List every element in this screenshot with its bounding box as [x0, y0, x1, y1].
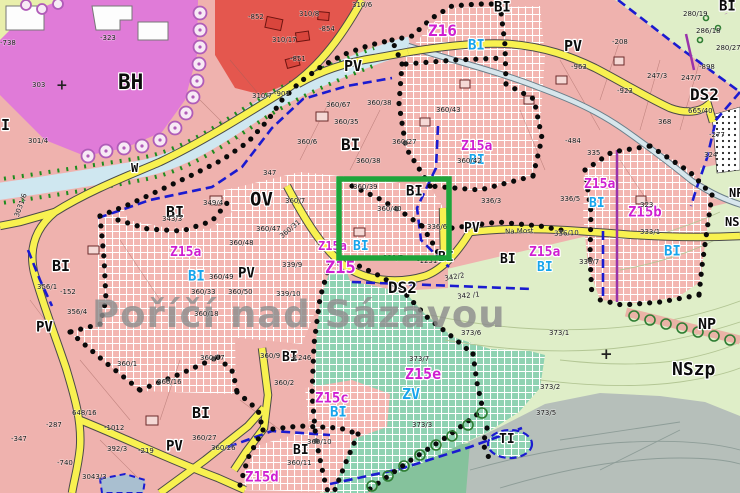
zone-code-label: TI	[499, 432, 515, 447]
use-code-label: BI	[537, 260, 553, 275]
parcel-number-label: 360/33	[191, 288, 216, 296]
parcel-number-label: 343/3	[162, 215, 182, 223]
zone-code-label: PV	[344, 57, 362, 75]
parcel-number-label: 360/18	[194, 310, 219, 318]
parcel-number-label: -208	[612, 38, 628, 46]
parcel-number-label: 360/38	[367, 99, 392, 107]
plan-code-label: Z15	[325, 258, 356, 278]
parcel-number-label: 360/17	[200, 354, 225, 362]
zone-code-label: PV	[238, 266, 255, 282]
parcel-number-label: -738	[0, 39, 16, 47]
parcel-number-label: -898	[699, 63, 715, 71]
transport-corridor-ds2	[712, 107, 740, 173]
zone-code-label: DS2	[388, 278, 417, 297]
map-canvas: Poříčí nad Sázavou OVBHBIBIBIIBIBIBIBIBI…	[0, 0, 740, 493]
parcel-number-label: 339/9	[282, 261, 302, 269]
parcel-number-label: 360/1	[117, 360, 137, 368]
parcel-number-label: 280/27	[716, 44, 740, 52]
survey-cross: +	[56, 78, 68, 94]
parcel-number-label: 360/49	[209, 273, 234, 281]
parcel-number-label: 373/5	[536, 409, 556, 417]
parcel-number-label: 286/18	[696, 27, 721, 35]
parcel-number-label: 360/10	[307, 438, 332, 446]
plan-code-label: Z15a	[529, 245, 560, 260]
parcel-number-label: 373/6	[461, 329, 482, 337]
use-code-label: ZV	[402, 385, 420, 403]
zoning-map: Poříčí nad Sázavou OVBHBIBIBIIBIBIBIBIBI…	[0, 0, 740, 493]
use-code-label: BI	[589, 196, 605, 211]
zone-code-label: NSzp	[725, 215, 740, 229]
parcel-number-label: 360/7	[285, 197, 305, 205]
zone-code-label: BI	[494, 0, 511, 16]
use-code-label: BI	[468, 38, 485, 54]
parcel-number-label: 360/27	[392, 138, 417, 146]
parcel-number-label: -152	[60, 288, 76, 296]
parcel-number-label: -219	[138, 447, 154, 455]
parcel-number-label: -851	[290, 55, 306, 63]
parcel-number-label: -277	[709, 131, 725, 139]
zone-code-label: BI	[719, 0, 736, 15]
parcel-number-label: 280/19	[683, 10, 708, 18]
parcel-number-label: -1012	[104, 424, 124, 432]
parcel-number-label: -484	[565, 137, 581, 145]
zone-code-label: PV	[166, 439, 183, 455]
zone-code-label: BI	[406, 184, 423, 200]
parcel-number-label: -1246	[291, 354, 312, 362]
parcel-number-label: 339/10	[276, 290, 301, 298]
parcel-number-label: 360/16	[157, 378, 182, 386]
use-code-label: BI	[353, 239, 369, 254]
plan-code-label: Z15a	[170, 245, 201, 260]
zone-code-label: NSzp	[672, 359, 716, 380]
parcel-number-label: 247/3	[647, 72, 667, 80]
parcel-number-label: 368	[658, 118, 671, 126]
parcel-number-label: -854	[319, 25, 335, 33]
parcel-number-label: 360/42	[457, 157, 482, 165]
survey-cross: +	[600, 345, 613, 363]
parcel-number-label: 360/2	[274, 379, 294, 387]
plan-code-label: Z15a	[584, 177, 615, 192]
parcel-number-label: 360/9	[260, 352, 280, 360]
parcel-number-label: -287	[46, 421, 62, 429]
parcel-number-label: 360/27	[192, 434, 217, 442]
parcel-number-label: 336/6	[427, 223, 448, 231]
zone-code-label: OV	[250, 189, 273, 211]
use-code-label: BI	[188, 269, 205, 285]
parcel-number-label: 360/26	[211, 444, 236, 452]
parcel-number-label: 356/1	[37, 283, 57, 291]
parcel-number-label: 323	[640, 201, 653, 209]
parcel-number-label: 360/11	[287, 459, 312, 467]
parcel-number-label: 360/40	[377, 205, 402, 213]
parcel-number-label: 303	[32, 81, 45, 89]
parcel-number-label: 356/4	[67, 308, 88, 316]
parcel-number-label: 360/50	[228, 288, 253, 296]
parcel-number-label: 310/7	[252, 92, 272, 100]
parcel-number-label: -963	[571, 63, 587, 71]
plan-code-label: Z15d	[245, 470, 279, 486]
zone-code-label: BI	[192, 404, 210, 422]
parcel-number-label: 392/3	[107, 445, 127, 453]
town-name-label: Poříčí nad Sázavou	[92, 293, 506, 336]
parcel-number-label: 373/7	[409, 355, 429, 363]
zone-code-label: I	[1, 116, 10, 134]
zone-code-label: BH	[118, 70, 143, 94]
parcel-number-label: -852	[248, 13, 264, 21]
zone-code-label: W	[131, 161, 139, 175]
parcel-number-label: 333/1	[640, 228, 660, 236]
parcel-number-label: 360/47	[256, 225, 281, 233]
parcel-number-label: 324	[704, 151, 718, 159]
zone-code-label: PV	[464, 221, 480, 236]
parcel-number-label: 373/3	[412, 421, 432, 429]
parcel-number-label: 373/2	[540, 383, 560, 391]
plan-code-label: Z15e	[405, 365, 441, 383]
parcel-number-label: 665/40	[688, 107, 713, 115]
zone-code-label: PV	[564, 37, 582, 55]
parcel-number-label: 360/48	[229, 239, 254, 247]
plan-code-label: Z15a	[318, 239, 347, 253]
parcel-number-label: Na Most	[505, 227, 534, 236]
parcel-number-label: 360/39	[353, 183, 378, 191]
parcel-number-label: -923	[617, 87, 633, 95]
zone-code-label: BI	[341, 135, 360, 154]
parcel-number-label: -323	[100, 34, 116, 42]
zone-code-label: BI	[52, 257, 70, 275]
parcel-number-label: 310/6	[352, 1, 373, 9]
zone-code-label: PV	[36, 320, 53, 336]
zone-code-label: BI	[500, 252, 516, 267]
parcel-number-label: 310/17	[272, 36, 297, 44]
use-code-label: BI	[330, 405, 347, 421]
parcel-number-label: -901	[274, 90, 290, 98]
zone-code-label: DS2	[690, 85, 719, 104]
use-code-label: BI	[664, 244, 681, 260]
parcel-number-label: -740	[57, 459, 73, 467]
parcel-number-label: 347	[263, 169, 276, 177]
parcel-number-label: 247/7	[681, 74, 701, 82]
parcel-number-label: 360/6	[297, 138, 318, 146]
parcel-number-label: 360/35	[334, 118, 359, 126]
parcel-number-label: 336/5	[560, 195, 580, 203]
parcel-number-label: 360/67	[326, 101, 351, 109]
parcel-number-label: 373/1	[549, 329, 569, 337]
parcel-number-label: 360/43	[436, 106, 461, 114]
parcel-number-label: 360/38	[356, 157, 381, 165]
parcel-number-label: 335	[587, 149, 600, 157]
parcel-number-label: 3043/3	[82, 473, 107, 481]
parcel-number-label: 301/4	[28, 137, 49, 145]
parcel-number-label: 349/4	[203, 199, 224, 207]
plan-code-label: Z16	[428, 21, 457, 40]
zone-code-label: NP	[729, 186, 740, 200]
parcel-number-label: 336/3	[481, 197, 501, 205]
parcel-number-label: 336/10	[554, 229, 579, 238]
parcel-number-label: -347	[11, 435, 27, 443]
parcel-number-label: 310/8	[299, 10, 319, 18]
parcel-number-label: 648/16	[72, 409, 97, 417]
parcel-number-label: 336/7	[579, 258, 599, 266]
zone-code-label: NP	[698, 315, 716, 333]
plan-code-label: Z15a	[461, 139, 492, 154]
